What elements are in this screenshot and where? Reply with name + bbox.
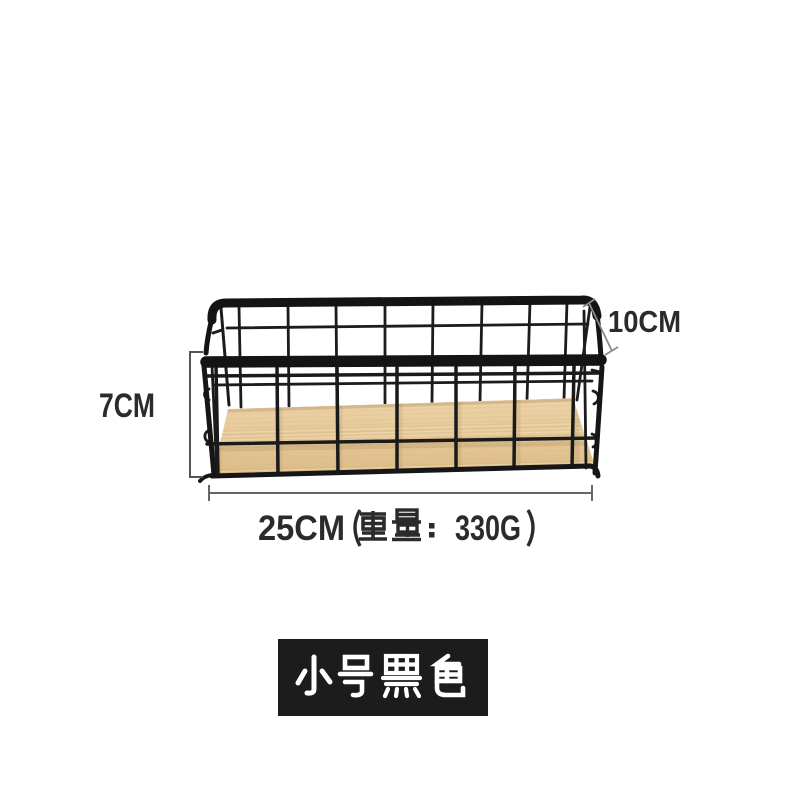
svg-text:330G: 330G	[455, 509, 521, 548]
svg-text:10CM: 10CM	[608, 304, 681, 339]
svg-text:25CM: 25CM	[258, 509, 345, 548]
svg-text:7CM: 7CM	[99, 387, 155, 425]
